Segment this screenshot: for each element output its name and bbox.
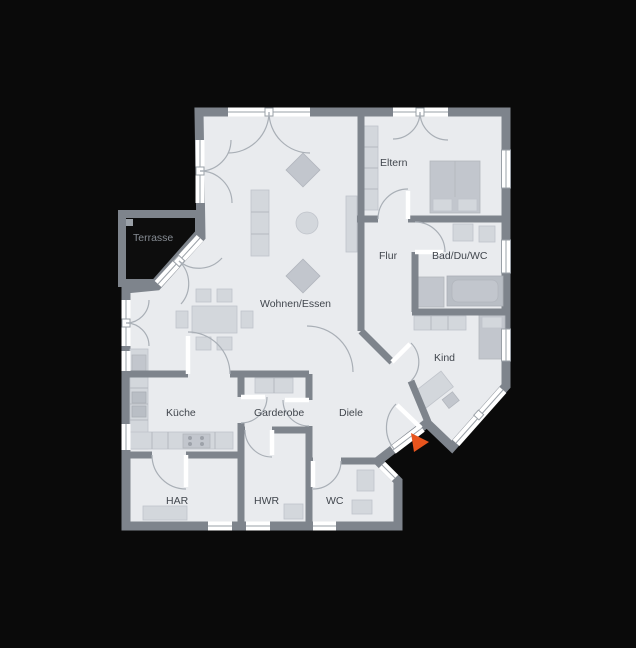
terrace-post [126,219,133,226]
bathtub-basin [452,280,498,302]
washing-machine [284,504,303,519]
room-label-eltern: Eltern [380,157,408,169]
chair [217,337,232,350]
sideboard [251,190,269,256]
appliance [132,392,146,403]
shelf [143,506,187,520]
room-label-wohnen-essen: Wohnen/Essen [260,298,331,310]
coffee-table [296,212,318,234]
room-label-diele: Diele [339,407,363,419]
wardrobe [414,316,466,330]
pillow [458,199,477,211]
floor-plan-drawing: Terrasse Wohnen/Essen Eltern Flur Bad/Du… [0,0,636,648]
stove [183,434,210,448]
room-label-garderobe: Garderobe [254,407,304,419]
chair [217,289,232,302]
room-label-terrasse: Terrasse [133,232,173,244]
toilet [479,226,495,242]
washbasin [352,500,372,514]
dining-table [192,306,237,333]
chair [196,337,211,350]
room-label-kueche: Küche [166,407,196,419]
room-label-wc: WC [326,495,344,507]
chair [176,311,188,328]
room-label-kind: Kind [434,352,455,364]
pillow [482,317,502,328]
room-label-bad: Bad/Du/WC [432,250,488,262]
washbasin [453,224,473,241]
room-label-hwr: HWR [254,495,279,507]
pillow [433,199,452,211]
room-label-flur: Flur [379,250,398,262]
chair [241,311,253,328]
toilet [357,470,374,491]
tv-lowboard [346,196,357,252]
appliance [132,406,146,417]
room-label-har: HAR [166,495,189,507]
entrance-arrow [411,433,429,452]
shower [418,277,444,307]
chair [196,289,211,302]
kitchen-counter [130,432,233,449]
floor-plan-page: Terrasse Wohnen/Essen Eltern Flur Bad/Du… [0,0,636,648]
